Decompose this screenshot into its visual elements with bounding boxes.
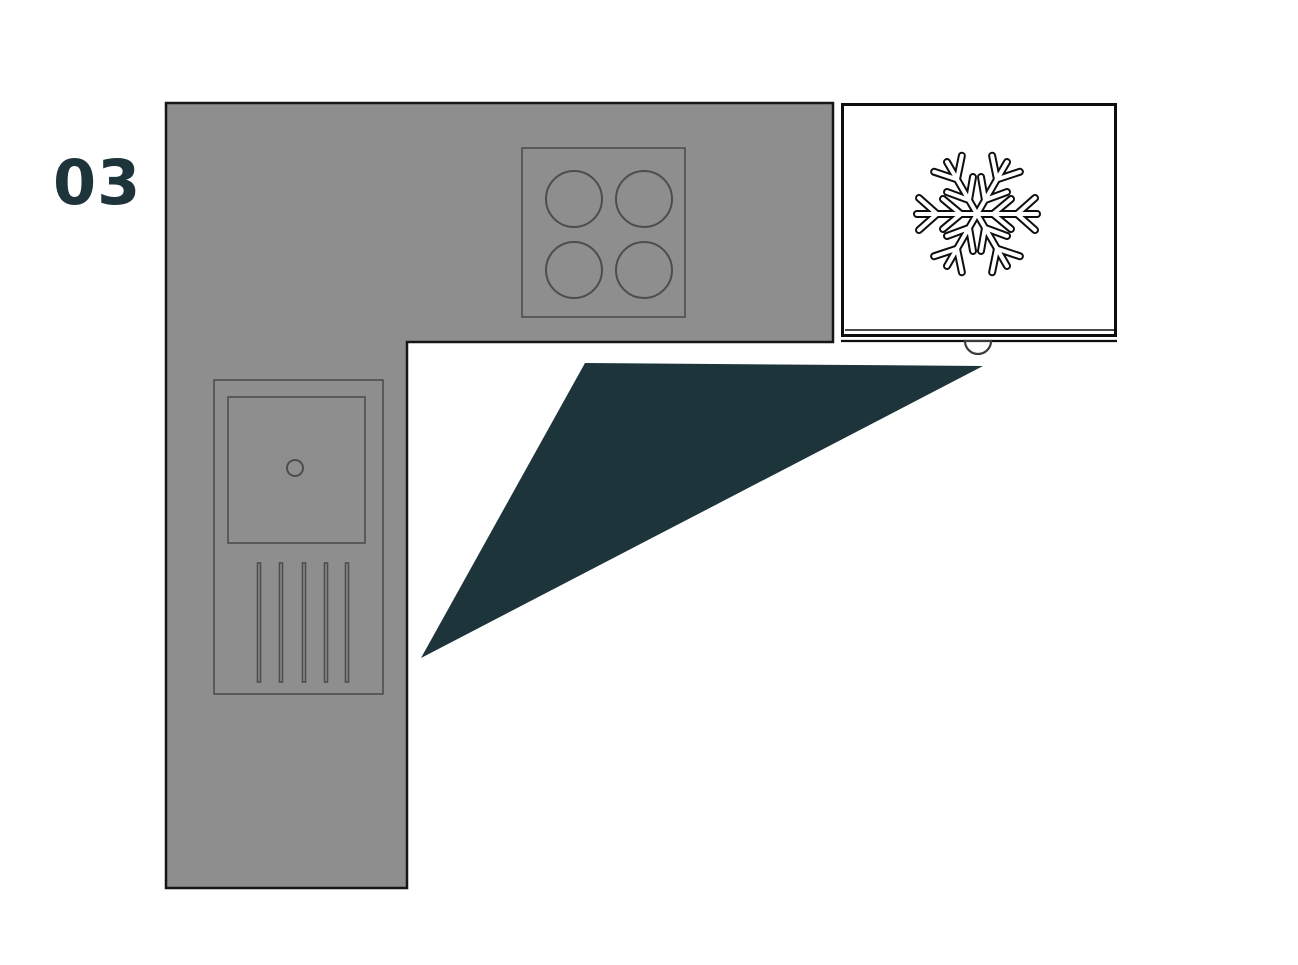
kitchen-plan-canvas: 03	[0, 0, 1298, 965]
refrigerator	[841, 105, 1117, 355]
refrigerator-handle	[965, 341, 991, 354]
kitchen-floorplan	[0, 0, 1298, 965]
work-triangle-overlay	[421, 363, 983, 658]
